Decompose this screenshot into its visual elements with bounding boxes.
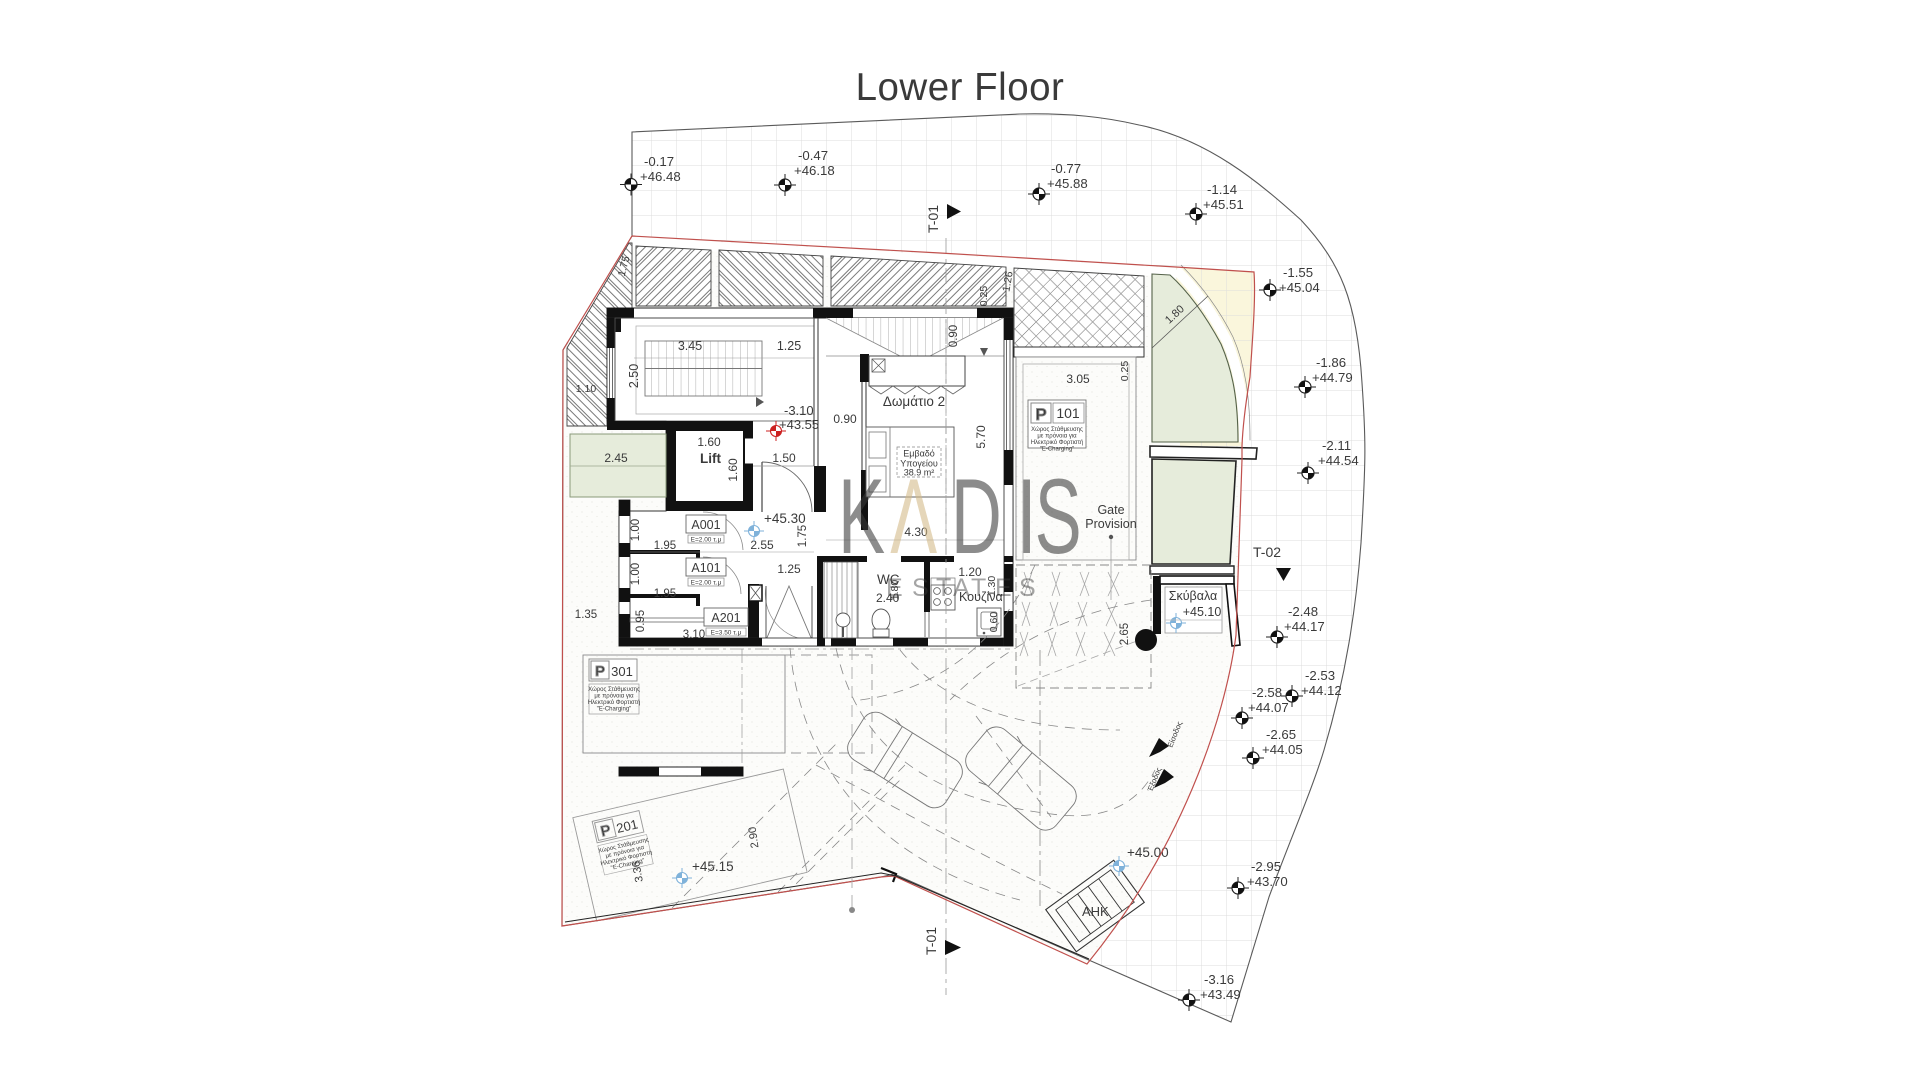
svg-text:2.65: 2.65 — [1119, 623, 1131, 645]
svg-text:-3.16: -3.16 — [1204, 972, 1234, 987]
svg-text:A201: A201 — [711, 611, 740, 625]
svg-text:+44.17: +44.17 — [1284, 619, 1325, 634]
svg-text:με πρόνοια για: με πρόνοια για — [1037, 433, 1077, 440]
svg-text:5.70: 5.70 — [974, 425, 988, 449]
svg-text:Δωμάτιο 2: Δωμάτιο 2 — [883, 394, 945, 409]
svg-text:με πρόνοια για: με πρόνοια για — [594, 693, 634, 700]
svg-text:2.45: 2.45 — [604, 451, 628, 465]
svg-text:P: P — [1035, 405, 1046, 424]
svg-text:AHK: AHK — [1082, 904, 1109, 919]
svg-text:E=2.00 τ.μ: E=2.00 τ.μ — [691, 580, 722, 587]
svg-text:+44.12: +44.12 — [1301, 683, 1342, 698]
svg-text:0.90: 0.90 — [948, 325, 960, 347]
svg-text:Lower Floor: Lower Floor — [856, 66, 1065, 109]
svg-text:1.95: 1.95 — [654, 588, 676, 600]
svg-text:-0.47: -0.47 — [798, 148, 828, 163]
svg-text:1.25: 1.25 — [777, 562, 801, 576]
svg-text:"E-Charging": "E-Charging" — [597, 707, 632, 713]
svg-text:1.60: 1.60 — [726, 458, 740, 482]
svg-text:+45.30: +45.30 — [764, 511, 806, 526]
svg-text:Ηλεκτρικό Φορτιστή: Ηλεκτρικό Φορτιστή — [588, 699, 641, 706]
svg-text:1.75: 1.75 — [797, 525, 809, 547]
svg-text:-2.95: -2.95 — [1251, 859, 1281, 874]
svg-text:+44.05: +44.05 — [1262, 742, 1303, 757]
svg-text:+44.54: +44.54 — [1318, 453, 1359, 468]
svg-text:+46.48: +46.48 — [640, 169, 681, 184]
svg-text:Χώρος Στάθμευσης: Χώρος Στάθμευσης — [1031, 426, 1083, 433]
svg-text:0.25: 0.25 — [978, 286, 990, 307]
svg-text:Χώρος Στάθμευσης: Χώρος Στάθμευσης — [588, 686, 640, 693]
svg-text:"E-Charging": "E-Charging" — [1040, 447, 1075, 453]
svg-text:1.35: 1.35 — [575, 609, 597, 621]
svg-text:+44.07: +44.07 — [1248, 700, 1289, 715]
svg-text:-1.14: -1.14 — [1207, 182, 1237, 197]
svg-text:T-01: T-01 — [923, 927, 939, 955]
svg-text:+43.55: +43.55 — [779, 417, 819, 432]
svg-text:+45.15: +45.15 — [692, 859, 734, 874]
svg-text:1.25: 1.25 — [777, 339, 801, 353]
svg-text:2.50: 2.50 — [627, 364, 641, 388]
svg-text:-0.77: -0.77 — [1051, 161, 1081, 176]
svg-text:-1.55: -1.55 — [1283, 265, 1313, 280]
svg-text:Ηλεκτρικό Φορτιστή: Ηλεκτρικό Φορτιστή — [1031, 439, 1084, 446]
svg-text:3.45: 3.45 — [678, 339, 702, 353]
svg-text:Lift: Lift — [700, 451, 721, 466]
svg-text:0.90: 0.90 — [833, 412, 857, 426]
svg-text:Gate: Gate — [1097, 503, 1124, 517]
svg-text:+45.88: +45.88 — [1047, 176, 1088, 191]
svg-text:+43.70: +43.70 — [1247, 874, 1288, 889]
svg-text:Σκύβαλα: Σκύβαλα — [1169, 589, 1218, 603]
svg-text:-2.58: -2.58 — [1252, 685, 1282, 700]
svg-text:-2.65: -2.65 — [1266, 727, 1296, 742]
svg-text:A: A — [953, 574, 970, 602]
svg-text:1.00: 1.00 — [630, 519, 642, 541]
svg-text:+45.51: +45.51 — [1203, 197, 1244, 212]
svg-text:P: P — [595, 663, 605, 680]
svg-text:-3.10: -3.10 — [784, 403, 814, 418]
svg-text:+46.18: +46.18 — [794, 163, 835, 178]
svg-text:E=2.00 τ.μ: E=2.00 τ.μ — [691, 537, 722, 544]
svg-text:S: S — [1019, 574, 1036, 602]
svg-text:+43.49: +43.49 — [1200, 987, 1241, 1002]
svg-text:0.95: 0.95 — [635, 610, 647, 632]
svg-text:KΛDIS: KΛDIS — [838, 457, 1082, 576]
svg-text:-0.17: -0.17 — [644, 154, 674, 169]
svg-text:1.10: 1.10 — [576, 383, 597, 395]
svg-text:A001: A001 — [691, 518, 720, 532]
svg-text:3.05: 3.05 — [1066, 372, 1090, 386]
svg-text:Provision: Provision — [1085, 517, 1136, 531]
svg-text:1.50: 1.50 — [772, 451, 796, 465]
svg-text:E: E — [886, 574, 903, 602]
svg-text:E: E — [995, 574, 1012, 602]
svg-text:E=3.50 τ.μ: E=3.50 τ.μ — [711, 630, 742, 637]
svg-text:301: 301 — [611, 664, 633, 679]
svg-text:-2.11: -2.11 — [1322, 438, 1351, 453]
svg-text:T: T — [936, 574, 951, 602]
svg-text:A101: A101 — [691, 561, 720, 575]
svg-text:S: S — [912, 574, 929, 602]
svg-text:+45.04: +45.04 — [1279, 280, 1320, 295]
svg-text:T-01: T-01 — [925, 205, 941, 233]
svg-text:+45.00: +45.00 — [1127, 845, 1169, 860]
svg-text:T: T — [971, 574, 986, 602]
svg-text:101: 101 — [1056, 405, 1080, 421]
svg-text:1.60: 1.60 — [697, 435, 721, 449]
svg-text:T-02: T-02 — [1253, 544, 1281, 560]
svg-text:-2.53: -2.53 — [1305, 668, 1335, 683]
svg-text:-2.48: -2.48 — [1288, 604, 1318, 619]
svg-text:+45.10: +45.10 — [1183, 605, 1222, 619]
svg-text:1.00: 1.00 — [630, 563, 642, 585]
svg-text:1.95: 1.95 — [654, 540, 676, 552]
svg-text:-1.86: -1.86 — [1316, 355, 1346, 370]
svg-text:0.25: 0.25 — [1119, 361, 1131, 382]
svg-text:+44.79: +44.79 — [1312, 370, 1353, 385]
